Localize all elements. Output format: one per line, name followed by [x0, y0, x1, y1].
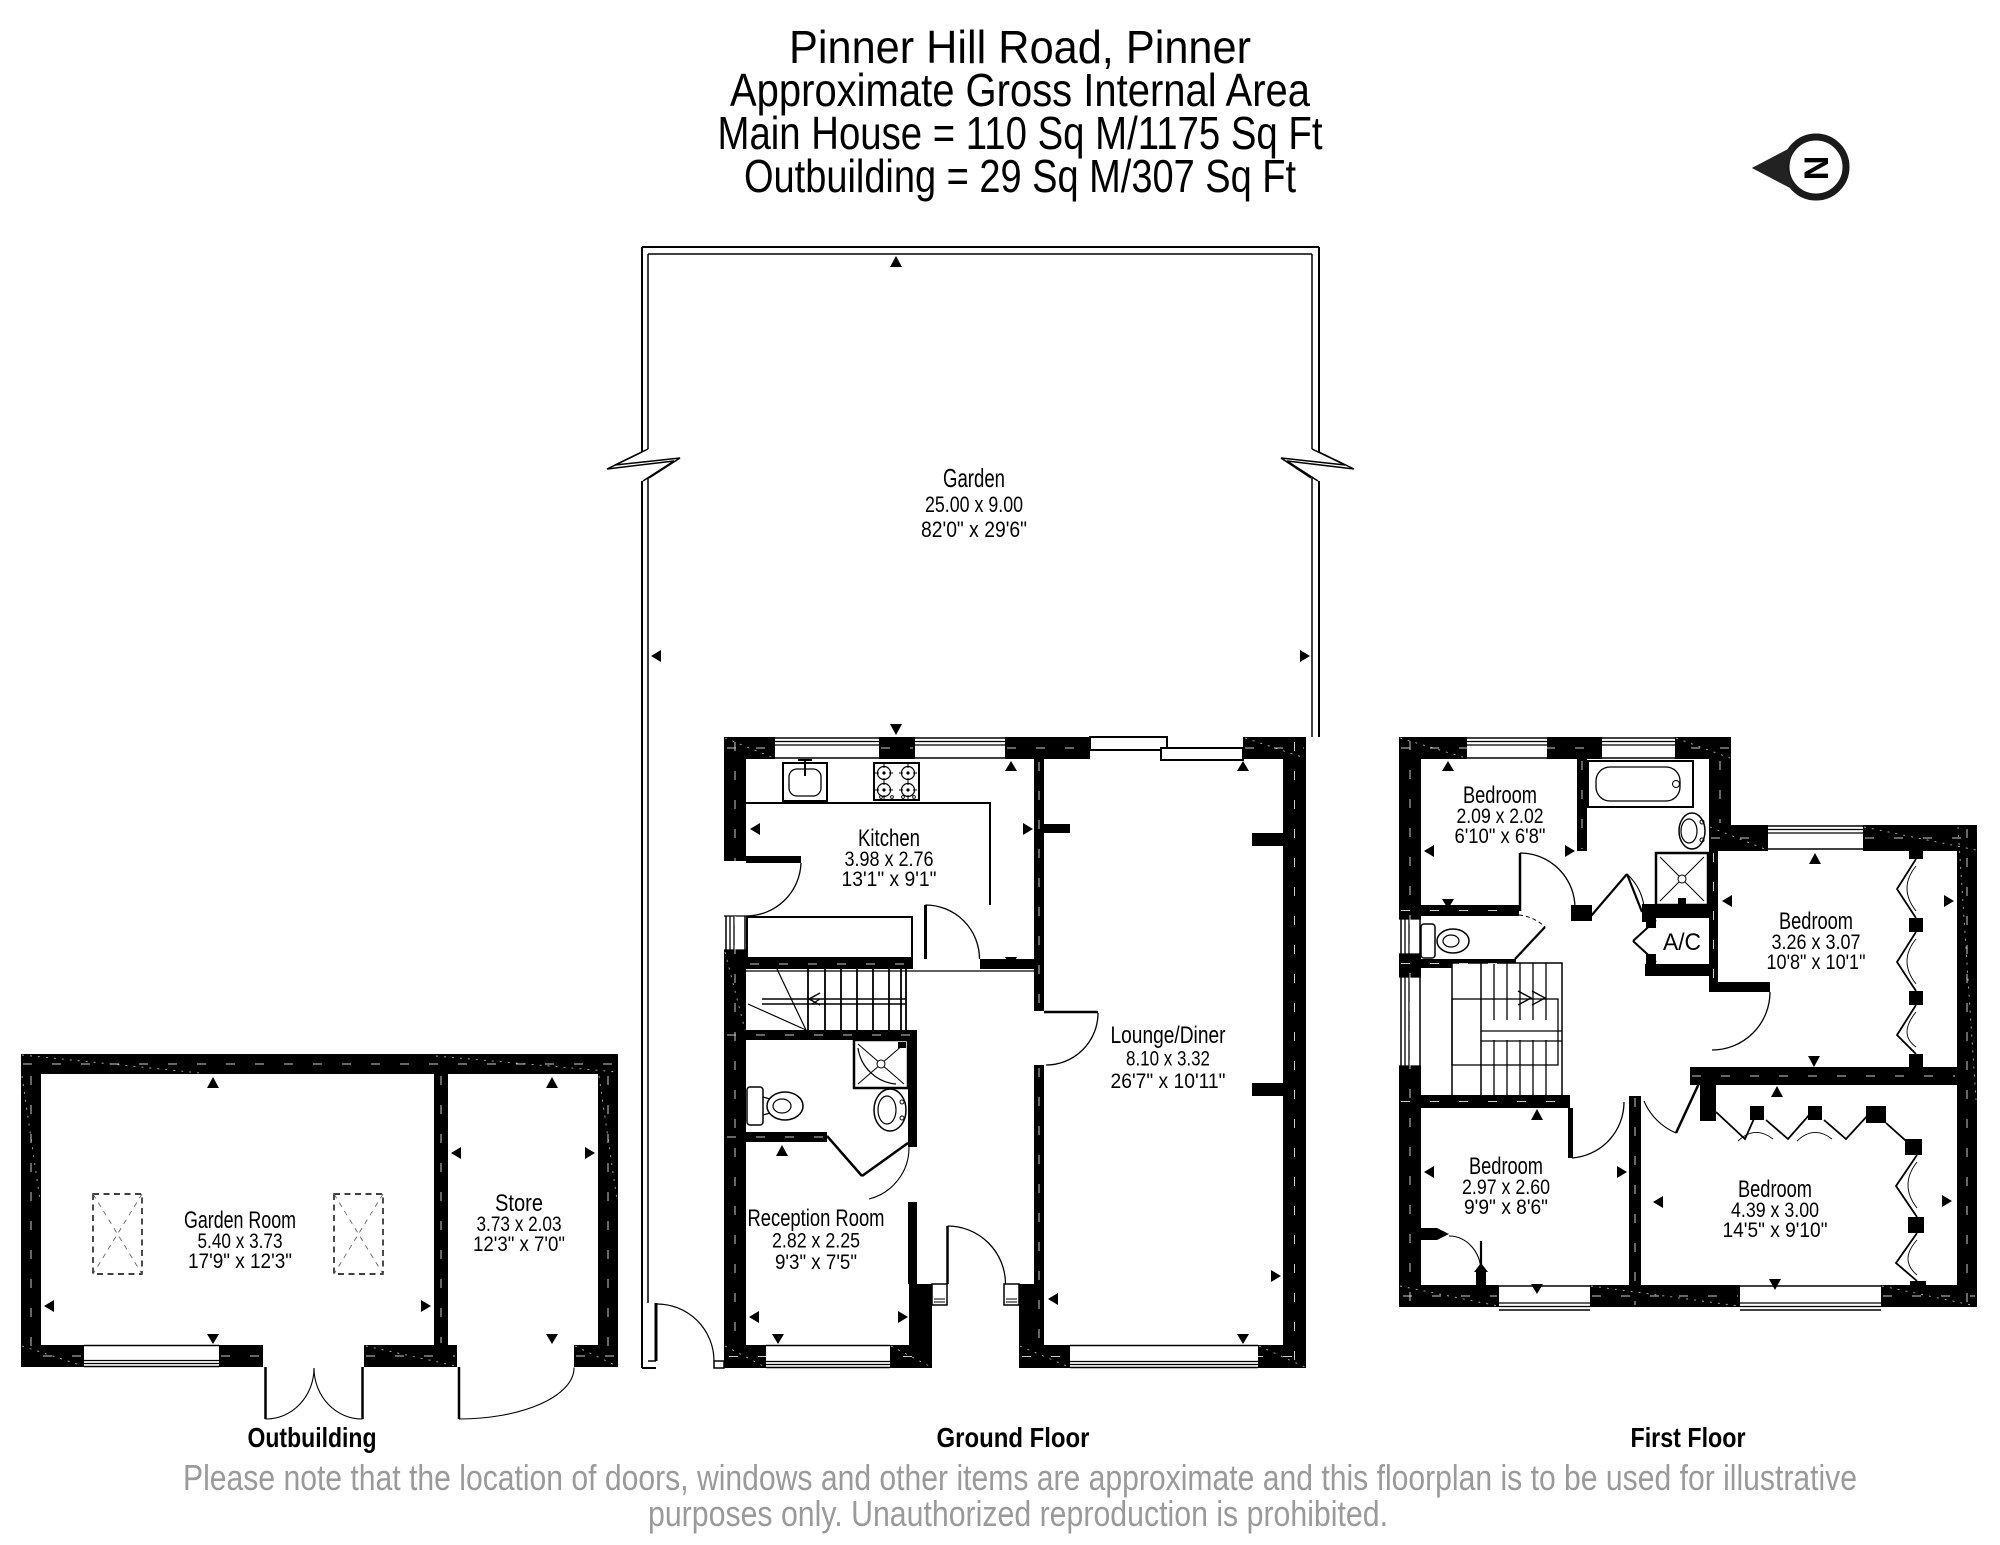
svg-text:Lounge/Diner: Lounge/Diner — [1111, 1022, 1226, 1049]
svg-text:Ground Floor: Ground Floor — [937, 1422, 1090, 1453]
svg-text:N: N — [1798, 156, 1836, 181]
svg-text:14'5" x 9'10": 14'5" x 9'10" — [1723, 1218, 1828, 1242]
svg-text:13'1" x 9'1": 13'1" x 9'1" — [842, 867, 937, 891]
svg-text:9'3" x 7'5": 9'3" x 7'5" — [775, 1250, 857, 1274]
svg-text:82'0" x 29'6": 82'0" x 29'6" — [921, 517, 1027, 542]
svg-text:First Floor: First Floor — [1631, 1422, 1746, 1453]
svg-text:12'3" x 7'0": 12'3" x 7'0" — [473, 1232, 565, 1256]
svg-text:25.00 x 9.00: 25.00 x 9.00 — [925, 492, 1023, 517]
svg-text:Outbuilding = 29 Sq M/307 Sq F: Outbuilding = 29 Sq M/307 Sq Ft — [744, 150, 1296, 202]
svg-text:8.10 x 3.32: 8.10 x 3.32 — [1126, 1047, 1210, 1071]
svg-text:Garden: Garden — [943, 463, 1005, 493]
svg-text:2.82 x 2.25: 2.82 x 2.25 — [772, 1229, 860, 1253]
svg-text:6'10" x 6'8": 6'10" x 6'8" — [1455, 824, 1546, 848]
svg-text:A/C: A/C — [1663, 929, 1701, 956]
svg-text:17'9" x 12'3": 17'9" x 12'3" — [188, 1249, 292, 1273]
svg-text:26'7" x 10'11": 26'7" x 10'11" — [1111, 1069, 1226, 1093]
svg-text:Please note that the location: Please note that the location of doors, … — [183, 1457, 1857, 1498]
svg-text:10'8" x 10'1": 10'8" x 10'1" — [1767, 950, 1866, 974]
svg-text:purposes only. Unauthorized re: purposes only. Unauthorized reproduction… — [648, 1493, 1388, 1534]
svg-text:9'9" x 8'6": 9'9" x 8'6" — [1464, 1195, 1548, 1219]
svg-text:Outbuilding: Outbuilding — [248, 1422, 377, 1453]
